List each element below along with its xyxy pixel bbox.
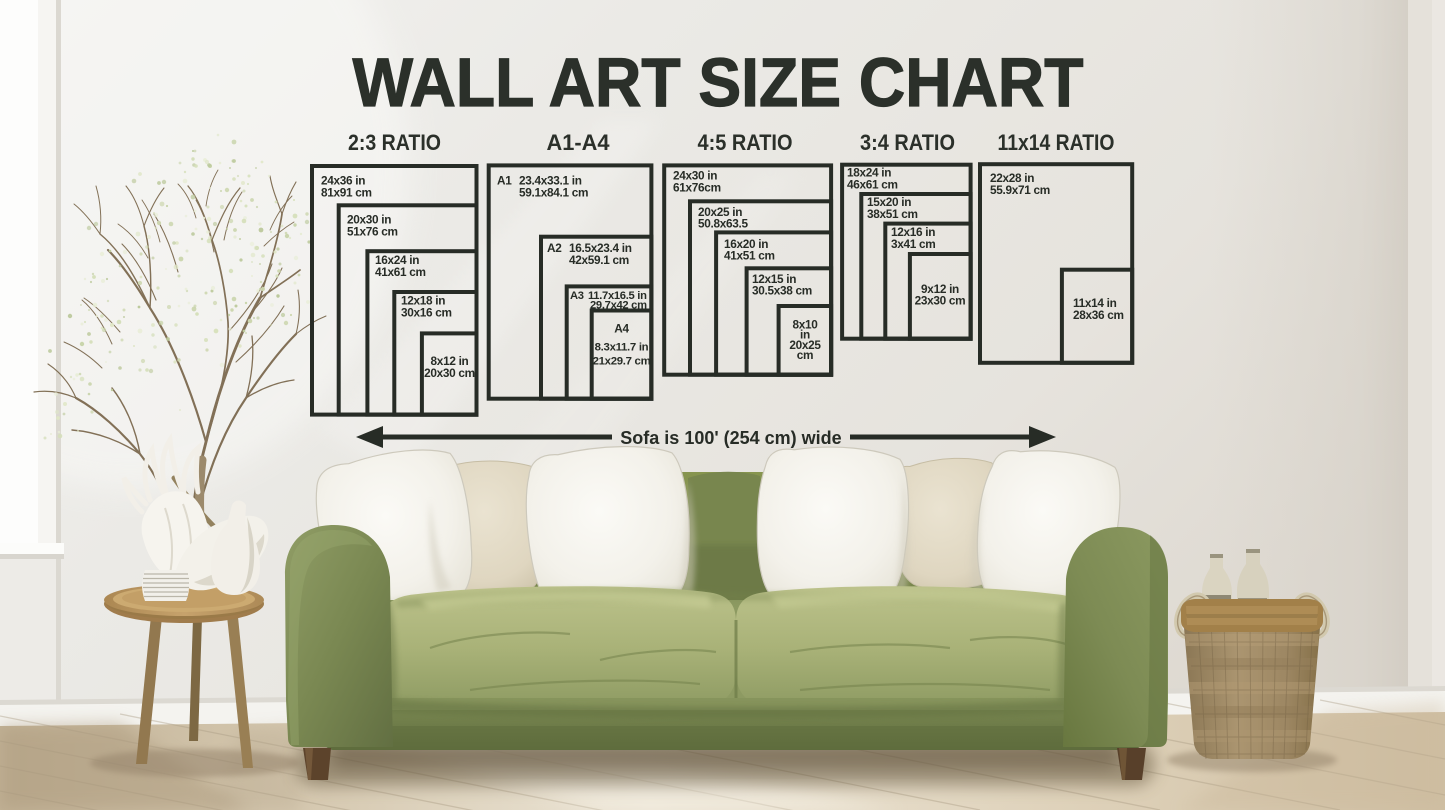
svg-text:41x61 cm: 41x61 cm <box>375 265 426 279</box>
svg-text:50.8x63.5: 50.8x63.5 <box>698 217 749 231</box>
svg-text:A1: A1 <box>497 174 512 188</box>
svg-text:21x29.7 cm: 21x29.7 cm <box>593 355 651 367</box>
svg-text:51x76 cm: 51x76 cm <box>347 224 398 238</box>
svg-text:61x76cm: 61x76cm <box>673 180 721 194</box>
svg-text:8.3x11.7 in: 8.3x11.7 in <box>595 342 649 354</box>
svg-text:30.5x38 cm: 30.5x38 cm <box>752 284 812 298</box>
svg-text:A4: A4 <box>614 321 629 335</box>
svg-text:29.7x42 cm: 29.7x42 cm <box>590 300 647 312</box>
svg-text:30x16 cm: 30x16 cm <box>401 306 452 320</box>
svg-text:cm: cm <box>797 348 813 362</box>
svg-text:3x41 cm: 3x41 cm <box>891 237 935 251</box>
svg-text:A2: A2 <box>547 241 562 255</box>
svg-text:59.1x84.1 cm: 59.1x84.1 cm <box>519 186 588 200</box>
svg-text:4:5 RATIO: 4:5 RATIO <box>698 130 793 155</box>
svg-text:42x59.1 cm: 42x59.1 cm <box>569 253 629 267</box>
svg-text:81x91 cm: 81x91 cm <box>321 185 372 199</box>
svg-text:28x36 cm: 28x36 cm <box>1073 308 1124 322</box>
svg-text:A1-A4: A1-A4 <box>547 130 611 155</box>
svg-text:11x14 RATIO: 11x14 RATIO <box>998 130 1115 155</box>
svg-text:Sofa is 100' (254 cm) wide: Sofa is 100' (254 cm) wide <box>620 428 841 448</box>
svg-text:3:4 RATIO: 3:4 RATIO <box>860 130 955 155</box>
svg-text:38x51 cm: 38x51 cm <box>867 207 918 221</box>
svg-text:41x51 cm: 41x51 cm <box>724 249 775 263</box>
svg-text:55.9x71 cm: 55.9x71 cm <box>990 183 1050 197</box>
svg-text:20x30 cm: 20x30 cm <box>424 366 475 380</box>
svg-text:2:3 RATIO: 2:3 RATIO <box>348 130 441 155</box>
svg-text:23x30 cm: 23x30 cm <box>915 294 966 308</box>
svg-text:WALL ART SIZE CHART: WALL ART SIZE CHART <box>353 44 1084 121</box>
svg-text:A3: A3 <box>570 290 584 302</box>
svg-text:46x61 cm: 46x61 cm <box>847 177 898 191</box>
